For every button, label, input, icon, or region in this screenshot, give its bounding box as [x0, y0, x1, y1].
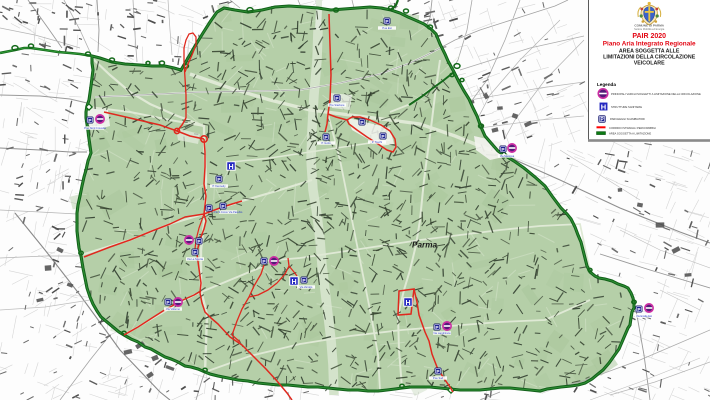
svg-text:Via Zarotto: Via Zarotto: [300, 285, 313, 289]
svg-text:AREA SOGGETTA A LIMITAZIONE: AREA SOGGETTA A LIMITAZIONE: [609, 131, 651, 135]
svg-text:P.se Est: P.se Est: [382, 26, 392, 30]
svg-text:P.le S.Croce Via Pasubio: P.le S.Croce Via Pasubio: [214, 210, 243, 214]
svg-text:H: H: [405, 299, 410, 307]
svg-text:PRINCIPALI VARCHI SOGGETTI A L: PRINCIPALI VARCHI SOGGETTI A LIMITAZIONE…: [611, 92, 701, 96]
svg-text:Piano Aria Integrato Regionale: Piano Aria Integrato Regionale: [603, 41, 696, 48]
svg-text:PARCHEGGI SCAMBIATORI: PARCHEGGI SCAMBIATORI: [610, 117, 645, 121]
svg-text:Via Langhirano: Via Langhirano: [433, 331, 451, 335]
svg-text:Parma: Parma: [412, 241, 437, 250]
svg-text:P. Kennedy: P. Kennedy: [212, 184, 226, 188]
svg-text:PAIR 2020: PAIR 2020: [632, 33, 666, 40]
svg-text:COMUNE DI PARMA: COMUNE DI PARMA: [634, 24, 664, 28]
svg-text:Via La Spezia: Via La Spezia: [187, 257, 204, 261]
svg-text:VEICOLARE: VEICOLARE: [634, 61, 665, 67]
svg-text:Via Emilia Est: Via Emilia Est: [636, 314, 652, 318]
svg-text:Settore Mobilità ed Energia: Settore Mobilità ed Energia: [634, 28, 665, 31]
svg-text:CORRIDOI STRADALI PERCORRIBILI: CORRIDOI STRADALI PERCORRIBILI: [609, 126, 656, 130]
svg-text:H: H: [228, 163, 233, 171]
svg-text:P. Goito: P. Goito: [321, 141, 331, 145]
svg-text:Via Volturno: Via Volturno: [166, 307, 180, 311]
svg-text:P.se Nord Crocetta: P.se Nord Crocetta: [84, 126, 106, 130]
svg-text:H: H: [291, 278, 296, 286]
svg-text:Via Mantova: Via Mantova: [500, 154, 515, 158]
svg-text:P.le Stazione: P.le Stazione: [330, 103, 346, 107]
svg-text:Legenda: Legenda: [597, 82, 616, 87]
svg-text:LIMITAZIONI DELLA CIRCOLAZIONE: LIMITAZIONI DELLA CIRCOLAZIONE: [603, 55, 696, 61]
svg-text:STRUTTURE SANITARIE: STRUTTURE SANITARIE: [611, 105, 642, 109]
svg-text:AREA SOGGETTA ALLE: AREA SOGGETTA ALLE: [619, 48, 680, 54]
svg-text:P. Toschi: P. Toschi: [372, 140, 383, 144]
svg-text:H: H: [601, 102, 606, 111]
svg-text:P.se Sud: P.se Sud: [433, 376, 444, 380]
